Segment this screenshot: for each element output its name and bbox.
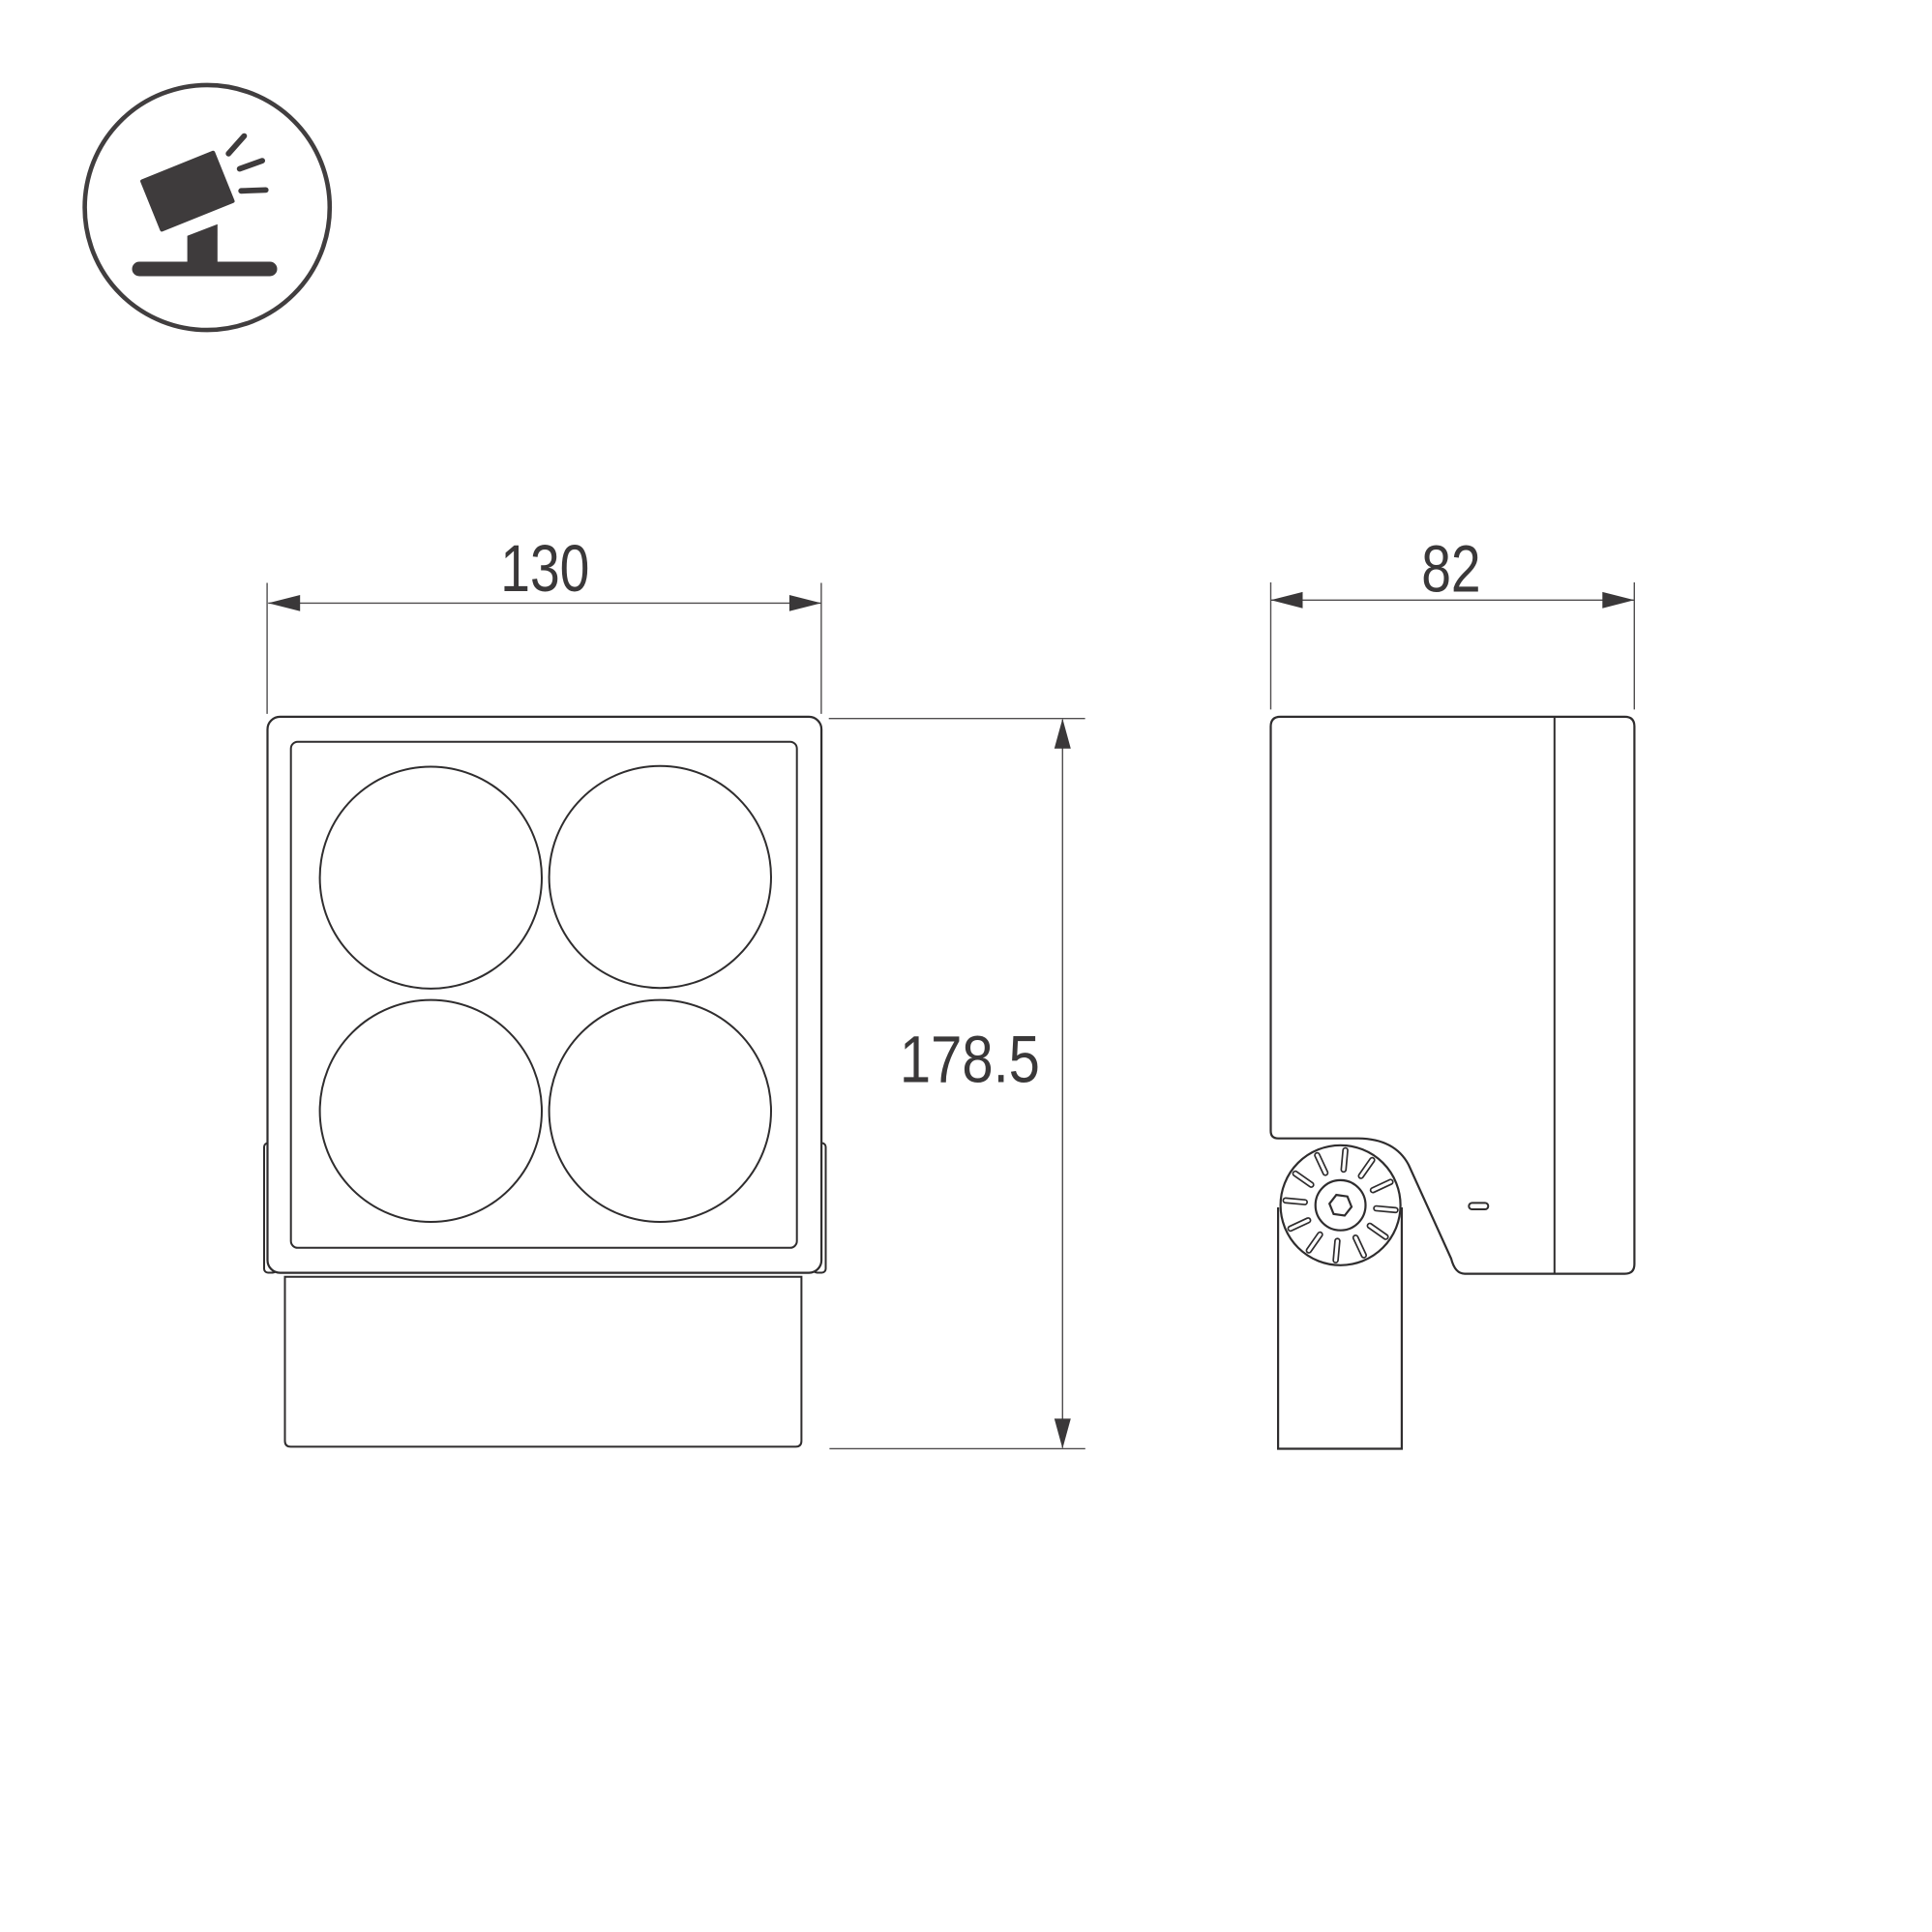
svg-text:82: 82 [1421, 532, 1480, 607]
svg-text:130: 130 [500, 531, 589, 606]
svg-text:178.5: 178.5 [900, 1021, 1040, 1096]
